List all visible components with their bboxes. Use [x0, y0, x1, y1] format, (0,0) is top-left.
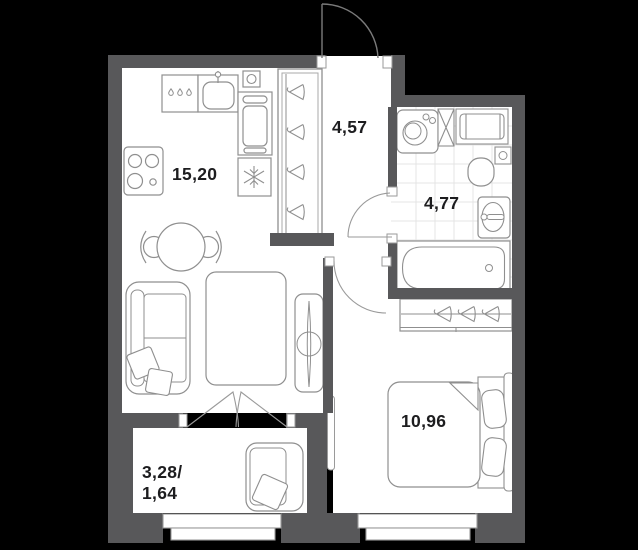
pillow-icon — [481, 437, 507, 477]
wall-right — [512, 95, 525, 543]
washing-machine-icon — [397, 110, 438, 153]
wall-living-bedroom — [323, 258, 333, 413]
bed-icon — [388, 373, 514, 491]
wall-bathroom-left-upper — [388, 107, 397, 196]
floor-plan-svg: 15,20 4,57 4,77 10,96 3,28/ 1,64 — [0, 0, 638, 550]
room-label-hallway: 4,57 — [332, 117, 367, 137]
dishwasher-icon — [162, 75, 198, 112]
bedroom-window — [358, 514, 477, 528]
armchair-icon — [246, 443, 303, 511]
stove-icon — [124, 147, 163, 195]
shelf-icon — [456, 109, 508, 144]
dining-table-icon — [157, 223, 205, 271]
wall-bathroom-bottom — [388, 288, 512, 299]
wall-balcony-bottom-left — [108, 513, 163, 543]
rug-icon — [206, 272, 286, 385]
wall-bedroom-bottom-left — [327, 513, 360, 543]
bathtub-icon — [397, 241, 510, 295]
pillow-icon — [481, 389, 507, 429]
room-label-balcony-line1: 3,28/ — [142, 462, 182, 482]
wall-balcony-bottom-right — [281, 513, 307, 543]
bedroom-wardrobe — [400, 299, 512, 332]
room-label-bedroom: 10,96 — [401, 411, 446, 431]
fridge-icon — [238, 158, 271, 196]
oven-icon — [238, 92, 272, 155]
hallway-wardrobe — [278, 69, 322, 238]
wall-bathroom-top — [400, 95, 525, 107]
floor-plan-canvas: 15,20 4,57 4,77 10,96 3,28/ 1,64 — [0, 0, 638, 550]
room-label-bathroom: 4,77 — [424, 193, 459, 213]
sofa-icon — [126, 282, 190, 396]
room-label-kitchen-living: 15,20 — [172, 164, 217, 184]
wall-balcony-right — [307, 413, 327, 543]
wall-top — [108, 55, 325, 68]
wall-left — [108, 55, 122, 428]
room-label-balcony-line2: 1,64 — [142, 483, 177, 503]
kitchen-sink-icon — [198, 71, 238, 112]
bathroom-sink-icon — [478, 197, 510, 238]
cabinet-icon — [438, 109, 454, 146]
bedroom-window-sill — [366, 528, 470, 540]
balcony-window — [163, 514, 281, 528]
cushion-icon — [145, 368, 173, 396]
wall-bedroom-bottom-right — [475, 513, 525, 543]
tv-stand-icon — [295, 294, 323, 392]
wall-wardrobe-stub — [270, 233, 334, 246]
entrance-opening — [325, 56, 383, 68]
balcony-window-sill — [171, 528, 275, 540]
hood-icon — [243, 71, 260, 87]
wall-living-bottom-left — [122, 413, 183, 428]
